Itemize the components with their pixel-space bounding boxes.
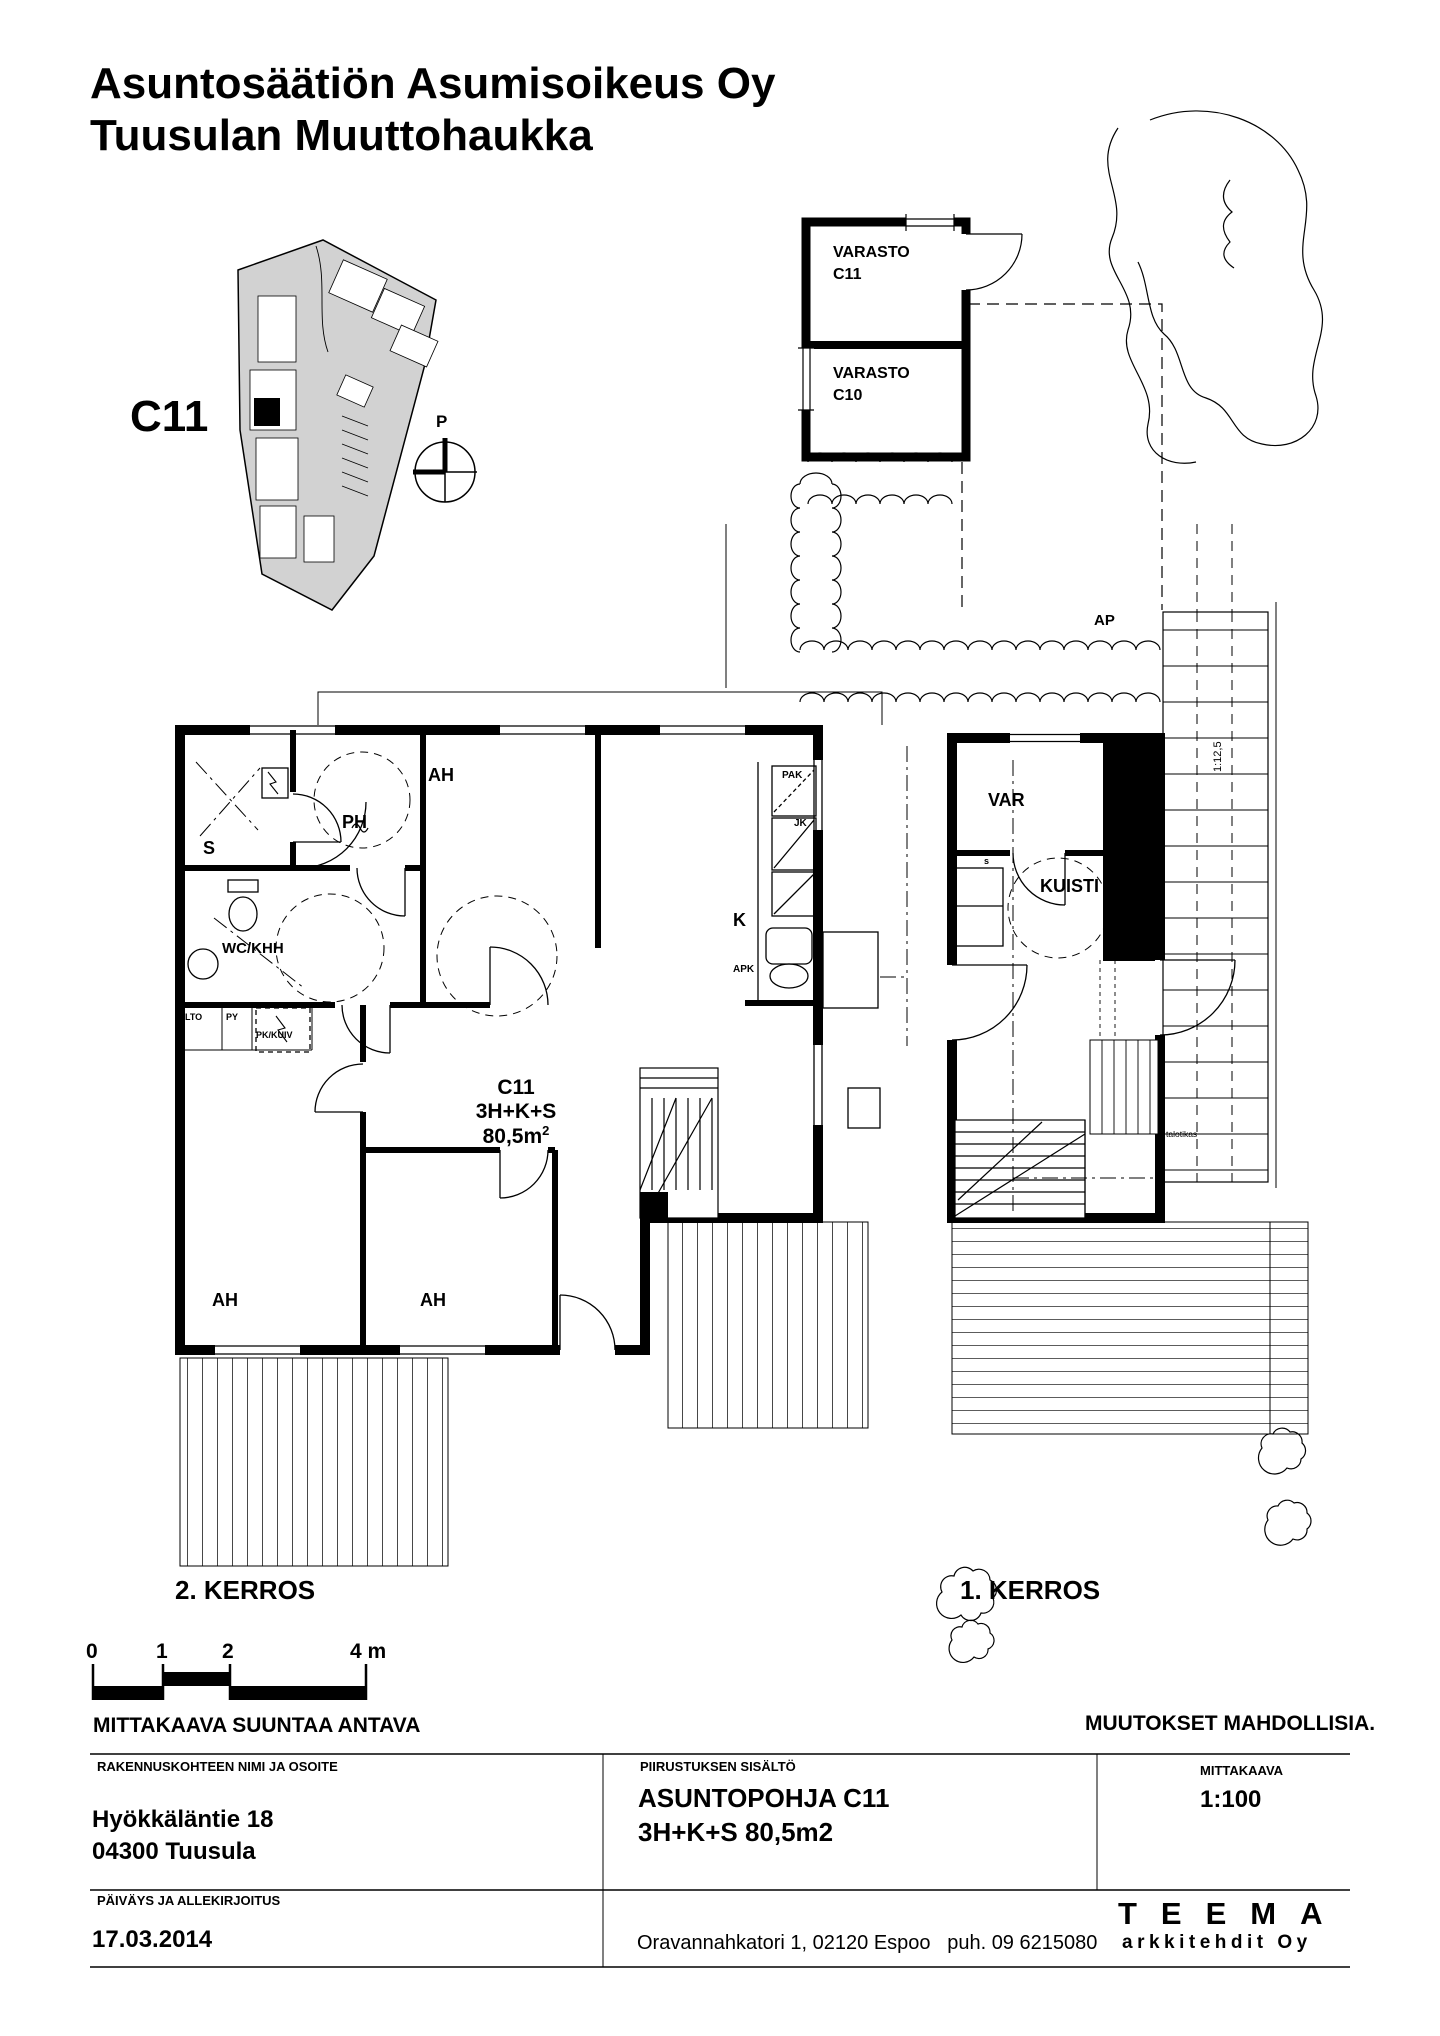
storage-room-c10: VARASTO C10 [833, 363, 910, 407]
drawing-title: ASUNTOPOHJA C11 [638, 1784, 889, 1814]
drawing-subtitle: 3H+K+S 80,5m2 [638, 1818, 833, 1848]
north-arrow [413, 438, 477, 502]
storage-room-c11-line2: C11 [833, 264, 910, 286]
storage-room-c11: VARASTO C11 [833, 242, 910, 286]
fixture-pkkuiv: PK/KUIV [256, 1030, 293, 1040]
titleblock-row2-header: PÄIVÄYS JA ALLEKIRJOITUS [97, 1894, 280, 1909]
fixture-py: PY [226, 1012, 238, 1022]
apartment-area: 80,5m2 [446, 1124, 586, 1149]
room-ah-top: AH [428, 765, 454, 786]
room-ah-bottom-left: AH [212, 1290, 238, 1311]
ladder-label: talotikas [1166, 1130, 1197, 1140]
room-var: VAR [988, 790, 1025, 811]
fixture-pak: PAK [782, 770, 802, 782]
floor2-plan-drawing [175, 524, 907, 1566]
apartment-area-value: 80,5m [483, 1125, 543, 1148]
architect-logo-sub: arkkitehdit Oy [1122, 1932, 1312, 1954]
apartment-id: C11 [446, 1076, 586, 1100]
scale-note: MITTAKAAVA SUUNTAA ANTAVA [93, 1714, 420, 1738]
sheet-title-line2: Tuusulan Muuttohaukka [90, 110, 775, 162]
changes-note: MUUTOKSET MAHDOLLISIA. [1085, 1712, 1375, 1736]
ground-terrace-hatch [952, 1222, 1308, 1434]
scale-tick-0: 0 [86, 1640, 98, 1664]
room-closet: s [984, 856, 989, 866]
storage-room-c10-line2: C10 [833, 385, 910, 407]
room-wc: WC/KHH [222, 940, 284, 957]
architect-logo: TEEMA [1118, 1896, 1347, 1932]
ramp-drawing [1163, 602, 1276, 1188]
scale-tick-1: 1 [156, 1640, 168, 1664]
titleblock-col3-header: MITTAKAAVA [1200, 1764, 1283, 1779]
office-address: Oravannahkatori 1, 02120 Espoo puh. 09 6… [637, 1932, 1097, 1955]
address-line2: 04300 Tuusula [92, 1838, 256, 1866]
apartment-info: C11 3H+K+S 80,5m2 [446, 1076, 586, 1149]
floor1-name: 1. KERROS [960, 1576, 1100, 1606]
room-kitchen: K [733, 910, 746, 931]
room-ph: PH [342, 812, 367, 833]
site-plan-map [238, 240, 438, 610]
scale-bar [93, 1664, 366, 1700]
room-ah-bottom-mid: AH [420, 1290, 446, 1311]
apartment-type: 3H+K+S [446, 1100, 586, 1124]
storage-room-c11-line1: VARASTO [833, 242, 910, 264]
floor1-plan-drawing [947, 602, 1308, 1434]
unit-c11-location-marker [254, 398, 280, 426]
drawing-sheet: Asuntosäätiön Asumisoikeus Oy Tuusulan M… [0, 0, 1440, 2036]
terrace-deck-hatch [668, 1222, 868, 1428]
fixture-jk: JK [794, 818, 807, 830]
scale-value: 1:100 [1200, 1786, 1261, 1814]
storage-building-plan [798, 214, 1022, 457]
ramp-slope-label: 1:12,5 [1212, 741, 1225, 772]
scale-tick-4: 4 m [350, 1640, 386, 1664]
storage-room-c10-line1: VARASTO [833, 363, 910, 385]
site-unit-label: C11 [130, 392, 208, 443]
balcony-deck-hatch [180, 1358, 448, 1566]
date-value: 17.03.2014 [92, 1926, 212, 1954]
room-sauna: S [203, 838, 215, 859]
fixture-lto: LTO [185, 1012, 202, 1022]
north-label: P [436, 412, 447, 432]
titleblock-col2-header: PIIRUSTUKSEN SISÄLTÖ [640, 1760, 796, 1775]
sheet-title-line1: Asuntosäätiön Asumisoikeus Oy [90, 58, 775, 110]
address-line1: Hyökkäläntie 18 [92, 1806, 273, 1834]
fixture-apk: APK [733, 964, 754, 976]
scale-tick-2: 2 [222, 1640, 234, 1664]
floor2-name: 2. KERROS [175, 1576, 315, 1606]
parking-label: AP [1094, 612, 1115, 629]
room-kuisti: KUISTI [1040, 876, 1099, 897]
sheet-title: Asuntosäätiön Asumisoikeus Oy Tuusulan M… [90, 58, 775, 162]
titleblock-col1-header: RAKENNUSKOHTEEN NIMI JA OSOITE [97, 1760, 338, 1775]
property-dashed-lines [962, 304, 1232, 612]
apartment-area-sup: 2 [542, 1123, 549, 1138]
